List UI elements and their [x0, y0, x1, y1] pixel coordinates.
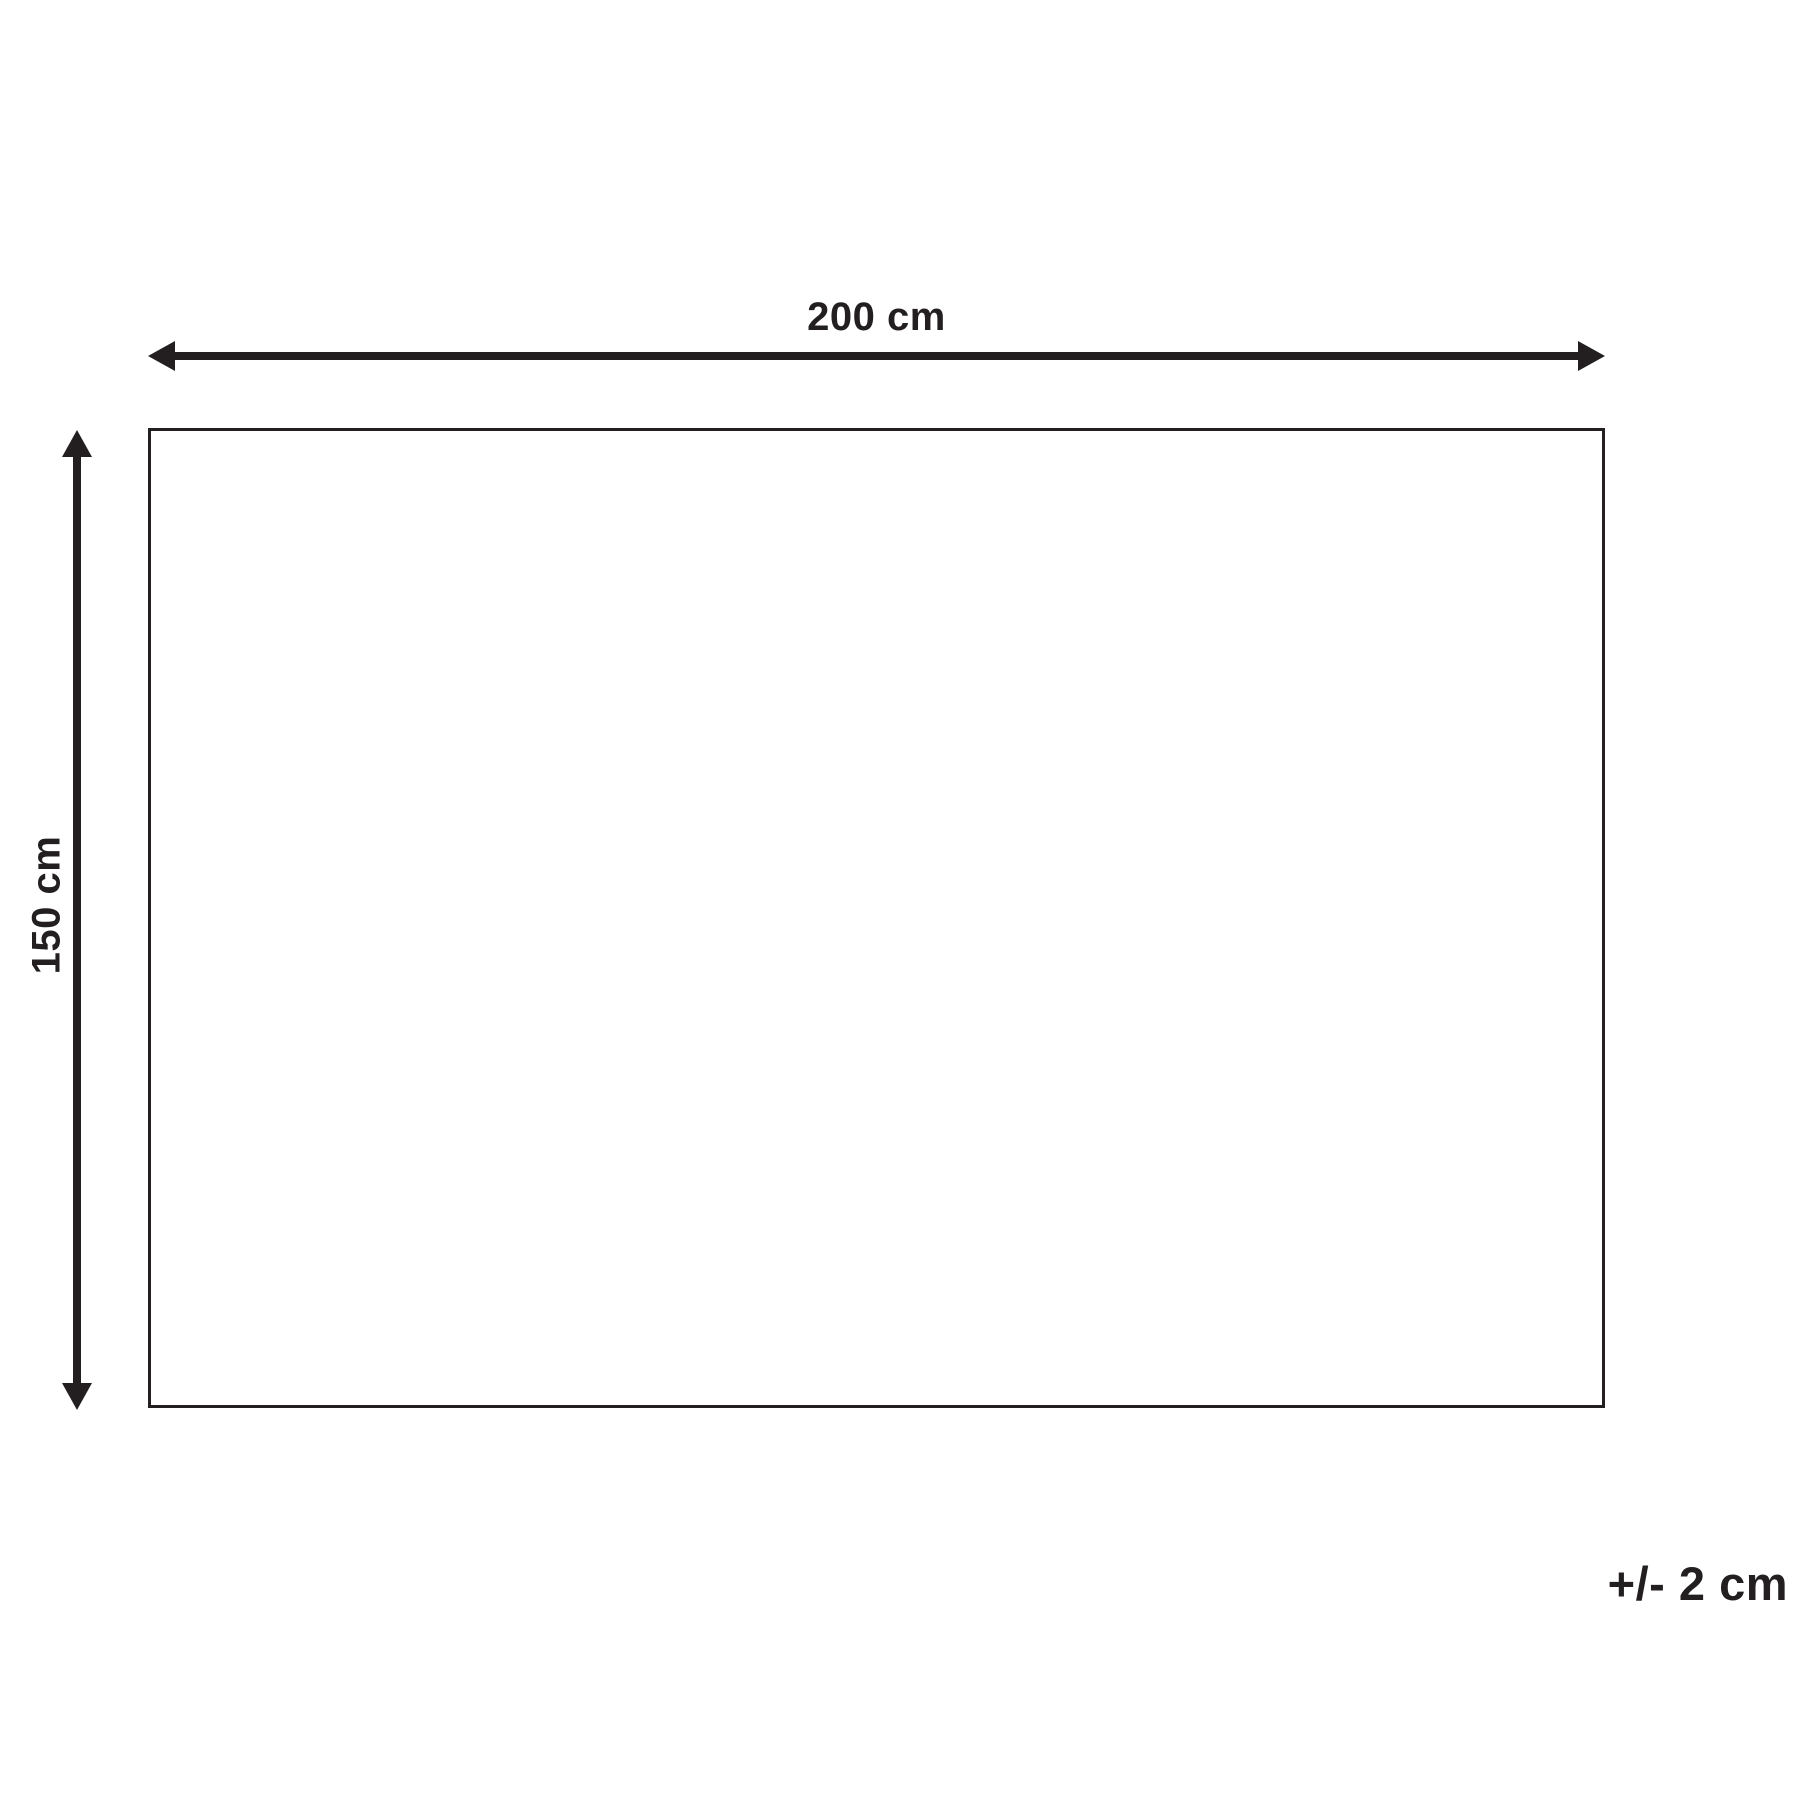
tolerance-label: +/- 2 cm: [1608, 1556, 1788, 1611]
height-dimension-label: 150 cm: [25, 836, 70, 975]
horizontal-double-arrow-icon: [148, 340, 1605, 372]
dimension-diagram: 200 cm 150 cm +/- 2 cm: [0, 0, 1800, 1800]
width-dimension-label: 200 cm: [148, 294, 1605, 340]
product-outline: [148, 428, 1605, 1408]
